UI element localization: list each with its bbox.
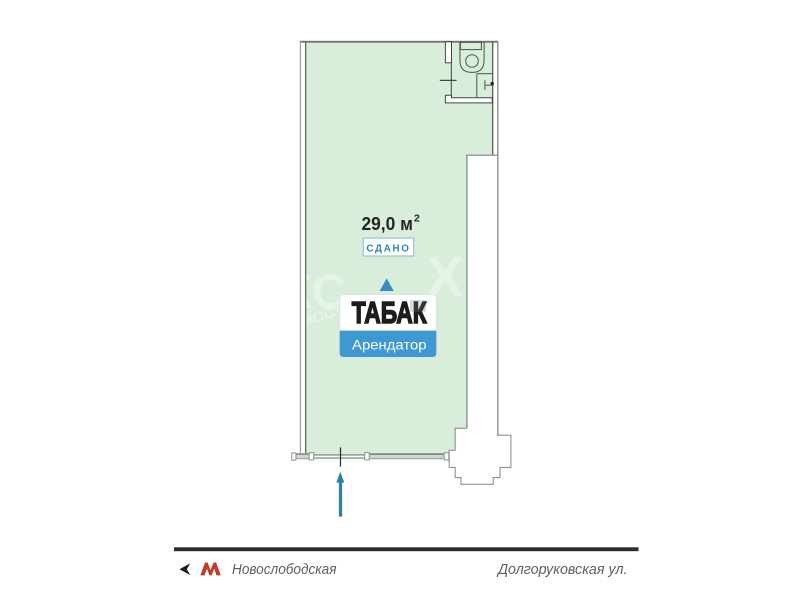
svg-text:СДАНО: СДАНО xyxy=(366,244,410,255)
svg-text:2: 2 xyxy=(414,213,420,225)
svg-text:Долгоруковская ул.: Долгоруковская ул. xyxy=(496,561,627,578)
svg-text:29,0 м: 29,0 м xyxy=(362,213,413,234)
svg-text:Новослободская: Новослободская xyxy=(232,561,337,578)
svg-text:Арендатор: Арендатор xyxy=(352,337,427,352)
